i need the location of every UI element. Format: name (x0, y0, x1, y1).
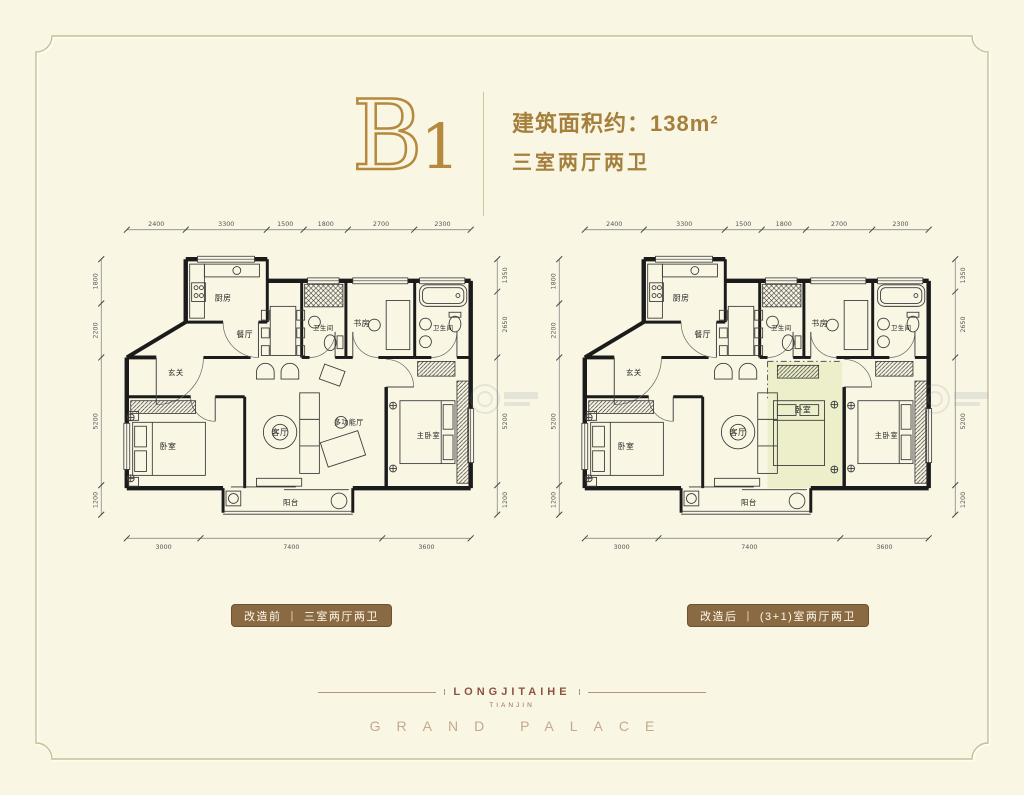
brand-line-left (318, 692, 436, 693)
caption-after: 改造后 | (3+1)室两厅两卫 (687, 604, 869, 627)
area-text: 建筑面积约：138m² (512, 106, 719, 138)
svg-text:2300: 2300 (892, 220, 908, 228)
svg-text:5200: 5200 (959, 413, 967, 429)
room-label-before: 多功能厅 (334, 417, 363, 426)
svg-text:1200: 1200 (91, 492, 99, 508)
unit-title: B 1 (352, 72, 472, 182)
svg-text:7400: 7400 (283, 543, 299, 551)
svg-text:3000: 3000 (614, 543, 630, 551)
footer-brand-block: LONGJITAIHE TIANJIN GRAND PALACE (0, 686, 1024, 734)
caption-after-text: (3+1)室两厅两卫 (760, 608, 856, 624)
room-label-after: 书房 (811, 318, 828, 328)
unit-letter: B (352, 90, 419, 182)
room-label-before: 卫生间 (433, 323, 454, 332)
header-text: 建筑面积约：138m² 三室两厅两卫 (512, 106, 719, 175)
svg-text:3600: 3600 (876, 543, 892, 551)
svg-text:2200: 2200 (549, 322, 557, 338)
room-label-before: 客厅 (272, 427, 289, 437)
svg-text:1200: 1200 (501, 492, 509, 508)
room-label-before: 阳台 (283, 498, 299, 507)
caption-separator: | (291, 610, 295, 622)
room-label-before: 卧室 (160, 441, 177, 451)
room-label-after: 卫生间 (771, 323, 792, 332)
room-label-after: 玄关 (626, 368, 642, 377)
svg-text:3000: 3000 (156, 543, 172, 551)
room-label-after: 卫生间 (891, 323, 912, 332)
room-label-before: 卫生间 (313, 323, 334, 332)
room-label-before: 厨房 (215, 292, 232, 302)
svg-text:2200: 2200 (91, 322, 99, 338)
svg-text:3600: 3600 (418, 543, 434, 551)
svg-text:1800: 1800 (91, 273, 99, 289)
svg-text:1350: 1350 (501, 267, 509, 283)
room-label-after: 阳台 (741, 498, 757, 507)
caption-before-prefix: 改造前 (244, 608, 282, 624)
floorplan-after: 厨房餐厅卫生间书房卫生间玄关卧室客厅卧室主卧室阳台240033001500180… (516, 212, 968, 556)
caption-before: 改造前 | 三室两厅两卫 (231, 604, 392, 627)
svg-text:1500: 1500 (277, 220, 293, 228)
svg-text:1500: 1500 (735, 220, 751, 228)
svg-text:3300: 3300 (218, 220, 234, 228)
svg-text:5200: 5200 (501, 413, 509, 429)
brand-city: TIANJIN (0, 702, 1024, 709)
brand-english-name: GRAND PALACE (0, 718, 1024, 734)
caption-separator: | (747, 610, 751, 622)
svg-text:3300: 3300 (676, 220, 692, 228)
room-label-after: 客厅 (730, 427, 747, 437)
room-label-after: 卧室 (795, 404, 812, 414)
room-label-after: 厨房 (673, 292, 690, 302)
caption-after-prefix: 改造后 (700, 608, 738, 624)
caption-before-text: 三室两厅两卫 (304, 608, 379, 624)
svg-text:2650: 2650 (501, 316, 509, 332)
room-label-after: 卧室 (618, 441, 635, 451)
svg-text:1800: 1800 (776, 220, 792, 228)
svg-text:2400: 2400 (606, 220, 622, 228)
room-label-after: 餐厅 (694, 330, 711, 339)
svg-text:1200: 1200 (549, 492, 557, 508)
unit-number: 1 (421, 112, 460, 182)
brand-name: LONGJITAIHE (453, 686, 570, 698)
svg-text:5200: 5200 (91, 413, 99, 429)
svg-text:1800: 1800 (549, 273, 557, 289)
svg-text:2400: 2400 (148, 220, 164, 228)
svg-text:1800: 1800 (318, 220, 334, 228)
room-label-after: 主卧室 (875, 431, 899, 440)
room-label-before: 书房 (353, 318, 370, 328)
watermark-logo (470, 384, 540, 414)
svg-text:1350: 1350 (959, 267, 967, 283)
layout-text: 三室两厅两卫 (512, 146, 719, 175)
floorplan-before: 厨房餐厅卫生间书房卫生间玄关卧室客厅多功能厅主卧室阳台2400330015001… (58, 212, 510, 556)
svg-text:2700: 2700 (373, 220, 389, 228)
svg-text:1200: 1200 (959, 492, 967, 508)
brand-line-right (588, 692, 706, 693)
svg-text:2300: 2300 (434, 220, 450, 228)
svg-text:2650: 2650 (959, 316, 967, 332)
svg-text:2700: 2700 (831, 220, 847, 228)
svg-text:7400: 7400 (741, 543, 757, 551)
watermark-logo (920, 384, 990, 414)
room-label-before: 主卧室 (417, 431, 441, 440)
svg-text:5200: 5200 (549, 413, 557, 429)
room-label-before: 餐厅 (236, 330, 253, 339)
room-label-before: 玄关 (168, 368, 184, 377)
header-divider (483, 92, 484, 216)
